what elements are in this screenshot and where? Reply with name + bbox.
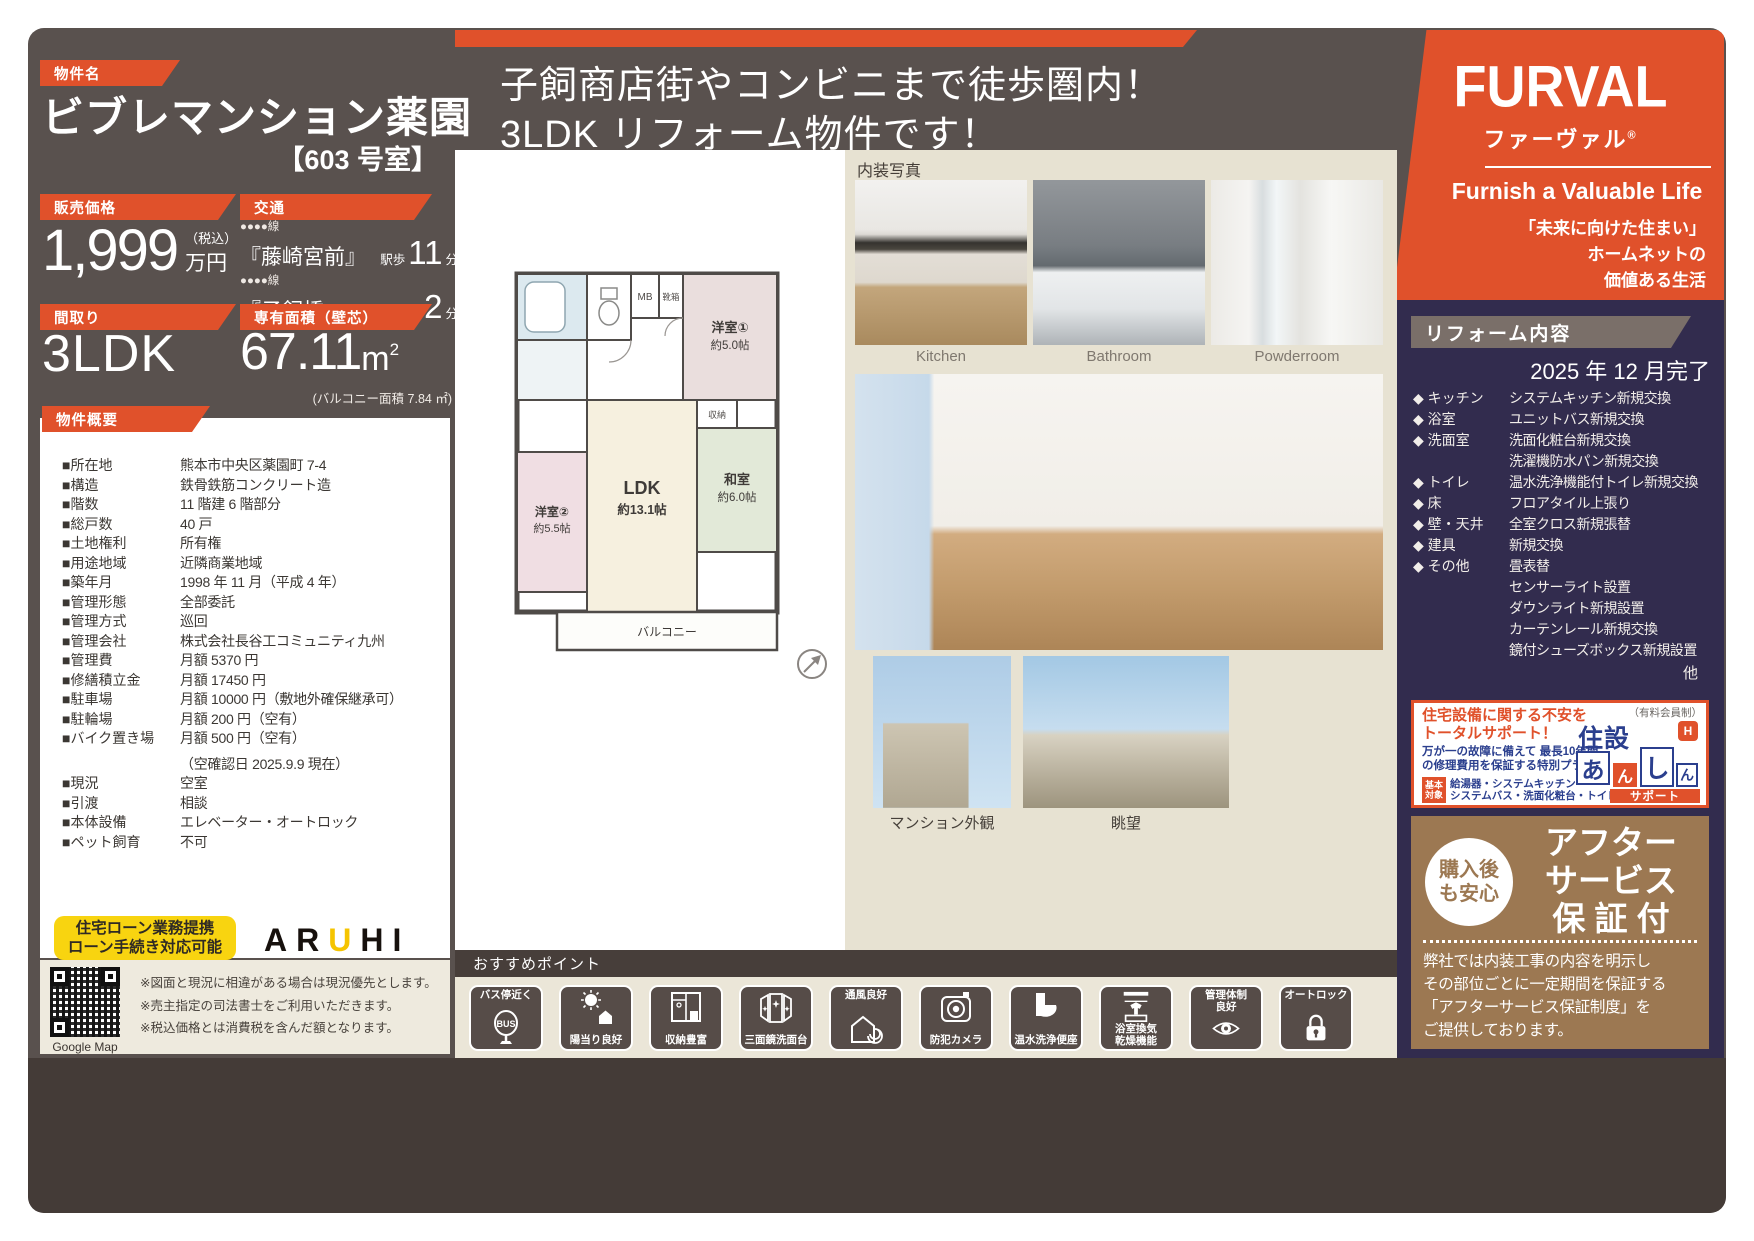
overview-row: ■築年月 1998 年 11 月（平成 4 年） [62,573,442,593]
reform-completion-date: 2025 年 12 月完了 [1410,354,1710,386]
point-storage: 収納豊富 [649,985,723,1051]
room-number: 【603 号室】 [42,138,438,177]
overview-tag: 物件概要 [42,406,210,432]
point-security-camera: 防犯カメラ [919,985,993,1051]
overview-value: 月額 10000 円（敷地外確保継承可） [180,690,442,710]
overview-row: ■現況 空室 [62,774,442,794]
qr-caption: Google Map [42,1040,128,1054]
anshin-support-box: 住宅設備に関する不安を トータルサポート！ 万が一の故障に備えて 最長10年間 … [1411,700,1709,808]
fp-room1-size: 約5.0帖 [711,338,750,352]
feature-icons-row: バス停近く BUS [455,977,1397,1058]
overview-key: ■本体設備 [62,813,180,833]
overview-key: ■管理費 [62,651,180,671]
overview-row: ■管理会社 株式会社長谷工コミュニティ九州 [62,632,442,652]
toilet-icon [1028,990,1064,1026]
reform-item-key: ◆ その他 [1413,556,1509,661]
overview-row: ■本体設備 エレベーター・オートロック [62,813,442,833]
photo-exterior [873,656,1011,808]
fp-mb-label: MB [638,292,653,303]
after-service-circle: 購入後 も安心 [1425,838,1513,926]
fp-closet-label: 収納 [708,409,726,420]
overview-row: ■土地権利 所有権 [62,534,442,554]
furval-kana: ファーヴァル® [1397,122,1724,154]
reform-tag: リフォーム内容 [1411,316,1691,348]
balcony-area-note: (バルコニー面積 7.84 ㎡) [240,388,452,407]
reform-item-values: システムキッチン新規交換 [1509,388,1713,409]
property-name: ビブレマンション薬園 [42,84,462,145]
overview-value: 月額 5370 円 [180,651,442,671]
support-target-badge: 基本 対象 [1422,777,1446,803]
floor-plan: MB 靴箱 洋室① 約5.0帖 LDK 約13.1帖 収納 和室 約6.0帖 洋… [467,262,847,692]
point-bathroom-dryer: 浴室換気 乾燥機能 [1099,985,1173,1051]
svg-text:BUS: BUS [496,1019,515,1029]
brand-slogan: 「未来に向けた住まい」 ホームネットの 価値ある生活 [1519,216,1706,294]
reform-item: ◆ 建具 新規交換 [1413,535,1713,556]
area-value: 67.11m2 [240,326,399,378]
point-ventilation: 通風良好 [829,985,903,1051]
overview-row: ■修繕積立金 月額 17450 円 [62,671,442,691]
overview-row: ■管理形態 全部委託 [62,593,442,613]
access-route-1: ●●●●線 『藤崎宮前』 駅歩 11 分 [240,220,458,272]
headline-line1: 子飼商店街やコンビニまで徒歩圏内！ [500,62,1163,111]
overview-row: ■バイク置き場 月額 500 円（空有） [62,729,442,749]
overview-row: ■総戸数 40 戸 [62,515,442,535]
overview-key [62,755,180,775]
overview-key: ■階数 [62,495,180,515]
photo-powderroom [1211,180,1383,345]
photo-caption-powderroom: Powderroom [1211,348,1383,365]
overview-row: ■用途地域 近隣商業地域 [62,554,442,574]
after-service-body: 弊社では内装工事の内容を明示し その部位ごとに一定期間を保証する 「アフターサー… [1423,950,1666,1042]
main-panel: MB 靴箱 洋室① 約5.0帖 LDK 約13.1帖 収納 和室 約6.0帖 洋… [455,150,1397,950]
support-headline: 住宅設備に関する不安を トータルサポート！ [1422,707,1587,743]
overview-key: ■構造 [62,476,180,496]
overview-key: ■土地権利 [62,534,180,554]
closet-icon [668,990,704,1026]
overview-key: ■駐輪場 [62,710,180,730]
reform-item-values: ユニットバス新規交換 [1509,409,1713,430]
reform-item: ◆ トイレ 温水洗浄機能付トイレ新規交換 [1413,472,1713,493]
furval-logo: FURVAL [1397,54,1724,121]
reform-item-key: ◆ キッチン [1413,388,1509,409]
photo-caption-exterior: マンション外観 [873,812,1011,833]
overview-value: 鉄骨鉄筋コンクリート造 [180,476,442,496]
photo-living-room [855,374,1383,650]
overview-row: ■駐車場 月額 10000 円（敷地外確保継承可） [62,690,442,710]
registered-mark: ® [1627,130,1637,142]
brand-divider [1485,166,1711,168]
point-management: 管理体制 良好 [1189,985,1263,1051]
price: 1,999 （税込） 万円 [42,222,237,280]
fp-ldk-name: LDK [624,478,661,498]
reform-item-key: ◆ 建具 [1413,535,1509,556]
point-bus-stop: バス停近く BUS [469,985,543,1051]
overview-row: ■駐輪場 月額 200 円（空有） [62,710,442,730]
overview-key: ■管理形態 [62,593,180,613]
eye-icon [1208,1016,1244,1046]
footer-band [28,1058,1726,1213]
overview-key: ■現況 [62,774,180,794]
overview-value: （空確認日 2025.9.9 現在） [180,755,442,775]
fp-washitsu-size: 約6.0帖 [718,490,757,504]
overview-value: 1998 年 11 月（平成 4 年） [180,573,442,593]
flyer-canvas: 物件名 ビブレマンション薬園 【603 号室】 販売価格 1,999 （税込） … [28,28,1726,1213]
overview-key: ■ペット飼育 [62,833,180,853]
reform-item-key: ◆ 壁・天井 [1413,514,1509,535]
route-line-name: ●●●●線 [240,220,458,234]
interior-photos-label: 内装写真 [857,157,921,181]
overview-row: ■管理方式 巡回 [62,612,442,632]
dotted-divider [1423,940,1697,943]
overview-key: ■所在地 [62,456,180,476]
price-value: 1,999 [42,222,177,280]
layout-value: 3LDK [42,324,176,384]
flyer-page: 物件名 ビブレマンション薬園 【603 号室】 販売価格 1,999 （税込） … [0,0,1754,1241]
overview-value: 月額 17450 円 [180,671,442,691]
overview-value: 不可 [180,833,442,853]
reform-items: ◆ キッチン システムキッチン新規交換 ◆ 浴室 ユニットバス新規交換 ◆ 洗面… [1413,388,1713,661]
point-sunny: 陽当り良好 [559,985,633,1051]
overview-value: 巡回 [180,612,442,632]
photo-caption-kitchen: Kitchen [855,348,1027,365]
overview-key: ■用途地域 [62,554,180,574]
after-service-box: 購入後 も安心 アフター サービス 保 証 付 弊社では内装工事の内容を明示し … [1411,816,1709,1049]
map-and-notes: Google Map ※図面と現況に相違がある場合は現況優先とします。※売主指定… [40,960,450,1054]
reform-item: ◆ キッチン システムキッチン新規交換 [1413,388,1713,409]
photo-kitchen [855,180,1027,345]
photo-caption-bathroom: Bathroom [1033,348,1205,365]
price-tax-note: （税込） [185,228,237,247]
reform-item: ◆ 壁・天井 全室クロス新規張替 [1413,514,1713,535]
property-overview: ■所在地 熊本市中央区薬園町 7-4 ■構造 鉄骨鉄筋コンクリート造 ■階数 1… [40,418,450,958]
wind-icon [848,1010,884,1046]
point-autolock: オートロック [1279,985,1353,1051]
photo-view [1023,656,1229,808]
overview-key: ■修繕積立金 [62,671,180,691]
overview-row: ■引渡 相談 [62,794,442,814]
reform-item-key: ◆ 洗面室 [1413,430,1509,472]
brand-panel: FURVAL ファーヴァル® Furnish a Valuable Life 「… [1397,30,1724,300]
overview-row: ■構造 鉄骨鉄筋コンクリート造 [62,476,442,496]
route-line-name: ●●●●線 [240,274,458,288]
overview-row: ■所在地 熊本市中央区薬園町 7-4 [62,456,442,476]
overview-value: 11 階建 6 階部分 [180,495,442,515]
overview-value: エレベーター・オートロック [180,813,442,833]
reform-item-values: 洗面化粧台新規交換洗濯機防水パン新規交換 [1509,430,1713,472]
loan-line1: 住宅ローン業務提携 [76,919,215,938]
overview-value: 相談 [180,794,442,814]
reform-item: ◆ その他 畳表替センサーライト設置ダウンライト新規設置カーテンレール新規交換鏡… [1413,556,1713,661]
photo-panel: 内装写真 Kitchen Bathroom Powderroom マンション外観… [845,150,1397,950]
reform-item-values: 畳表替センサーライト設置ダウンライト新規設置カーテンレール新規交換鏡付シューズボ… [1509,556,1713,661]
support-description: 万が一の故障に備えて 最長10年間 の修理費用を保証する特別プラン [1422,745,1598,773]
price-unit: 万円 [185,247,237,277]
reform-item: ◆ 床 フロアタイル上張り [1413,493,1713,514]
fp-room2-size: 約5.5帖 [533,521,570,535]
bus-icon: BUS [488,1010,524,1046]
disclaimer-note: ※図面と現況に相違がある場合は現況優先とします。 [140,972,437,995]
fp-ldk-size: 約13.1帖 [617,502,667,517]
price-tag: 販売価格 [40,194,236,220]
fp-balcony-label: バルコニー [637,625,697,639]
fp-room2-name: 洋室② [535,504,569,519]
camera-icon [938,990,974,1026]
overview-key: ■引渡 [62,794,180,814]
property-name-tag: 物件名 [40,60,180,86]
reform-item-key: ◆ 床 [1413,493,1509,514]
after-service-title: アフター サービス 保 証 付 [1523,824,1699,938]
reform-panel: リフォーム内容 2025 年 12 月完了 ◆ キッチン システムキッチン新規交… [1397,300,1724,1058]
overview-key: ■管理会社 [62,632,180,652]
reform-item: ◆ 洗面室 洗面化粧台新規交換洗濯機防水パン新規交換 [1413,430,1713,472]
overview-value: 全部委託 [180,593,442,613]
point-mirror: 三面鏡洗面台 [739,985,813,1051]
loan-banner: 住宅ローン業務提携 ローン手続き対応可能 [54,916,236,960]
overview-key: ■バイク置き場 [62,729,180,749]
points-bar: おすすめポイント [455,950,1397,977]
brand-tagline: Furnish a Valuable Life [1437,178,1717,205]
route-station: 『藤崎宮前』 [240,241,366,271]
reform-item-key: ◆ 浴室 [1413,409,1509,430]
homenet-h-icon: H [1678,721,1698,741]
overview-value: 熊本市中央区薬園町 7-4 [180,456,442,476]
fp-washitsu-name: 和室 [724,472,750,487]
photo-caption-view: 眺望 [1023,812,1229,833]
fp-shoe-label: 靴箱 [662,292,680,302]
reform-item-values: 温水洗浄機能付トイレ新規交換 [1509,472,1713,493]
aruhi-logo: ARUHI [264,922,410,959]
point-washlet: 温水洗浄便座 [1009,985,1083,1051]
overview-value: 月額 500 円（空有） [180,729,442,749]
loan-line2: ローン手続き対応可能 [68,938,222,957]
lock-icon [1299,1012,1333,1046]
reform-item-values: 新規交換 [1509,535,1713,556]
overview-row: ■ペット飼育 不可 [62,833,442,853]
disclaimer-note: ※税込価格とは消費税を含んだ額となります。 [140,1017,437,1040]
overview-value: 空室 [180,774,442,794]
fp-room1-name: 洋室① [711,320,748,335]
reform-etc: 他 [1683,662,1698,683]
overview-key: ■管理方式 [62,612,180,632]
bathroom-dryer-icon [1119,990,1153,1024]
sun-icon [578,990,614,1026]
reform-item-values: 全室クロス新規張替 [1509,514,1713,535]
three-way-mirror-icon [758,990,794,1026]
reform-item: ◆ 浴室 ユニットバス新規交換 [1413,409,1713,430]
overview-row: ■管理費 月額 5370 円 [62,651,442,671]
overview-row: （空確認日 2025.9.9 現在） [62,755,442,775]
overview-key: ■総戸数 [62,515,180,535]
overview-key: ■築年月 [62,573,180,593]
top-accent-bar [455,30,1197,47]
overview-value: 所有権 [180,534,442,554]
disclaimer-note: ※売主指定の司法書士をご利用いただきます。 [140,995,437,1018]
access-tag: 交通 [240,194,432,220]
reform-item-key: ◆ トイレ [1413,472,1509,493]
membership-note: （有料会員制） [1629,705,1703,720]
overview-value: 近隣商業地域 [180,554,442,574]
headline: 子飼商店街やコンビニまで徒歩圏内！ 3LDK リフォーム物件です！ [500,62,1163,160]
overview-key: ■駐車場 [62,690,180,710]
overview-value: 月額 200 円（空有） [180,710,442,730]
overview-row: ■階数 11 階建 6 階部分 [62,495,442,515]
overview-rows: ■所在地 熊本市中央区薬園町 7-4 ■構造 鉄骨鉄筋コンクリート造 ■階数 1… [40,418,450,852]
overview-value: 株式会社長谷工コミュニティ九州 [180,632,442,652]
photo-bathroom [1033,180,1205,345]
qr-code[interactable] [50,967,120,1037]
overview-value: 40 戸 [180,515,442,535]
jusetsu-anshin-logo: 住設 H あ ん し ん サポート [1576,719,1700,803]
reform-item-values: フロアタイル上張り [1509,493,1713,514]
disclaimer-notes: ※図面と現況に相違がある場合は現況優先とします。※売主指定の司法書士をご利用いた… [140,972,437,1040]
